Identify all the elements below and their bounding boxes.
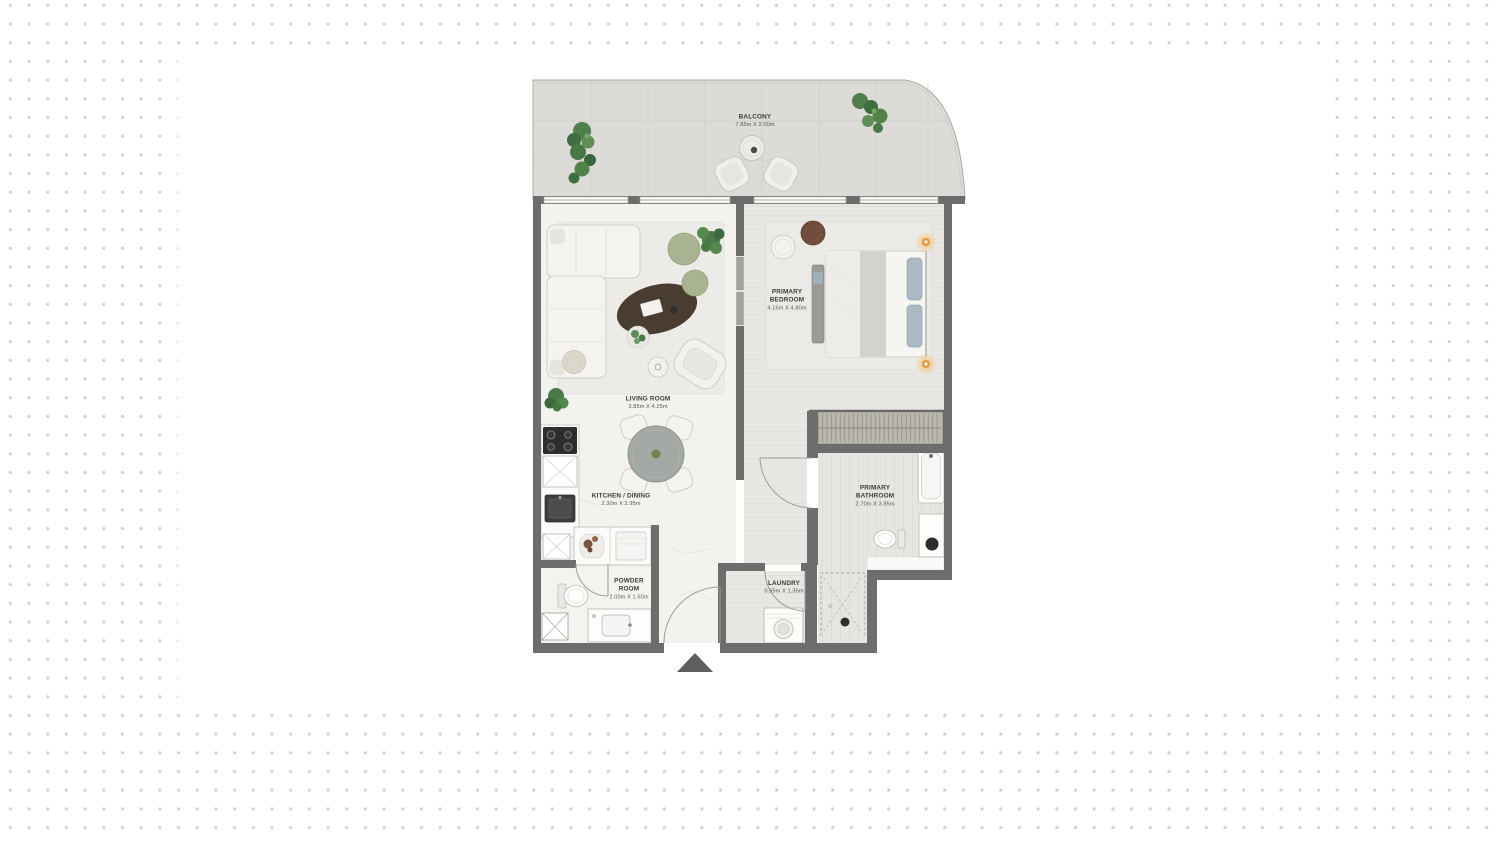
ottoman [801,221,825,245]
floor-plan: BALCONY 7.85m X 2.00m LIVING ROOM 3.85m … [530,76,970,676]
kitchen-dims: 2.30m X 2.95m [601,501,640,507]
powder-dims: 2.00m X 1.50m [609,595,648,601]
living-room-dims: 3.85m X 4.25m [628,404,667,410]
shower-head [841,618,850,627]
bathroom-dims: 2.70m X 3.95m [855,502,894,508]
side-table [563,351,586,374]
chair [771,235,795,259]
vanity [588,609,651,642]
kitchen-sink [545,495,575,522]
stove [543,427,577,454]
living-room-furniture [545,222,732,412]
room-label-primary-bedroom: PRIMARY BEDROOM 4.15m X 4.80m [767,289,806,312]
washing-machine [764,608,803,643]
powder-label-line1: POWDER [614,578,644,585]
toilet [558,584,588,608]
bedroom-label-line2: BEDROOM [770,297,804,304]
balcony-label: BALCONY [739,114,772,121]
entrance-marker [677,653,713,672]
powder-label-line2: ROOM [619,586,639,593]
toilet [874,530,905,548]
living-room-label: LIVING ROOM [626,396,671,403]
ceiling-lamp [915,353,937,375]
bedroom-dims: 4.15m X 4.80m [767,306,806,312]
balcony-dims: 7.85m X 2.00m [735,122,774,128]
wardrobe [810,411,944,445]
coffee-station [574,527,651,565]
laundry-label: LAUNDRY [768,580,801,587]
floor-plan-container: BALCONY 7.85m X 2.00m LIVING ROOM 3.85m … [530,76,970,676]
bedroom-label-line1: PRIMARY [772,289,803,296]
bathroom-vanity [919,514,944,557]
bed [812,251,926,357]
kitchen-label: KITCHEN / DINING [592,493,651,500]
bathroom-label-line1: PRIMARY [860,485,891,492]
ceiling-lamp [915,231,937,253]
bathtub [918,449,944,503]
laundry-dims: 0.95m X 1.35m [764,589,803,595]
bathroom-label-line2: BATHROOM [856,493,894,500]
sliding-door-panels [737,257,744,325]
room-label-primary-bathroom: PRIMARY BATHROOM 2.70m X 3.95m [855,485,894,508]
